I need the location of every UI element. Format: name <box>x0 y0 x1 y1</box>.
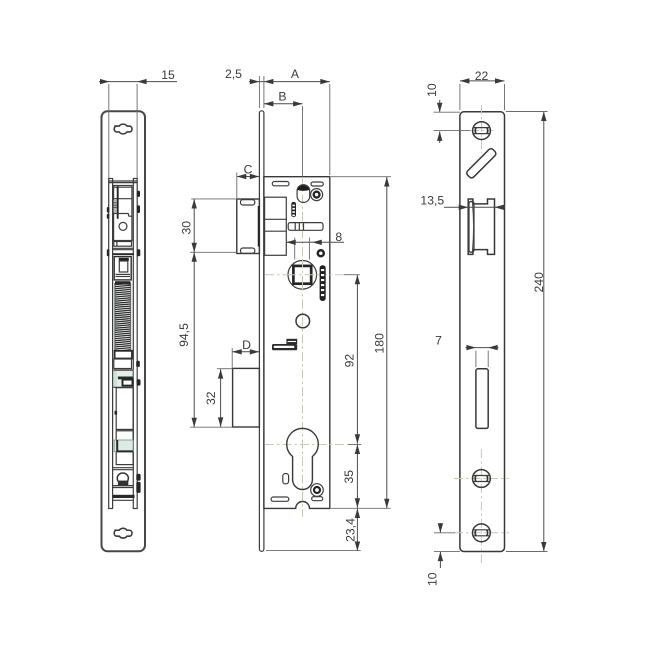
svg-text:30: 30 <box>179 221 193 235</box>
svg-text:94,5: 94,5 <box>177 323 191 347</box>
svg-text:35: 35 <box>342 470 356 484</box>
svg-text:7: 7 <box>435 334 442 348</box>
svg-text:D: D <box>242 338 251 352</box>
svg-text:23,4: 23,4 <box>344 518 358 542</box>
svg-text:2,5: 2,5 <box>225 67 242 81</box>
svg-text:10: 10 <box>426 572 440 586</box>
svg-text:13,5: 13,5 <box>420 194 444 208</box>
svg-text:32: 32 <box>204 391 218 405</box>
svg-text:180: 180 <box>373 333 387 354</box>
svg-text:B: B <box>278 90 286 104</box>
svg-text:15: 15 <box>161 68 175 82</box>
svg-text:240: 240 <box>532 272 546 293</box>
svg-text:10: 10 <box>425 83 439 97</box>
svg-text:A: A <box>291 67 300 81</box>
svg-text:22: 22 <box>475 69 489 83</box>
svg-text:8: 8 <box>335 230 342 244</box>
svg-text:C: C <box>244 163 253 177</box>
svg-text:92: 92 <box>342 354 356 368</box>
